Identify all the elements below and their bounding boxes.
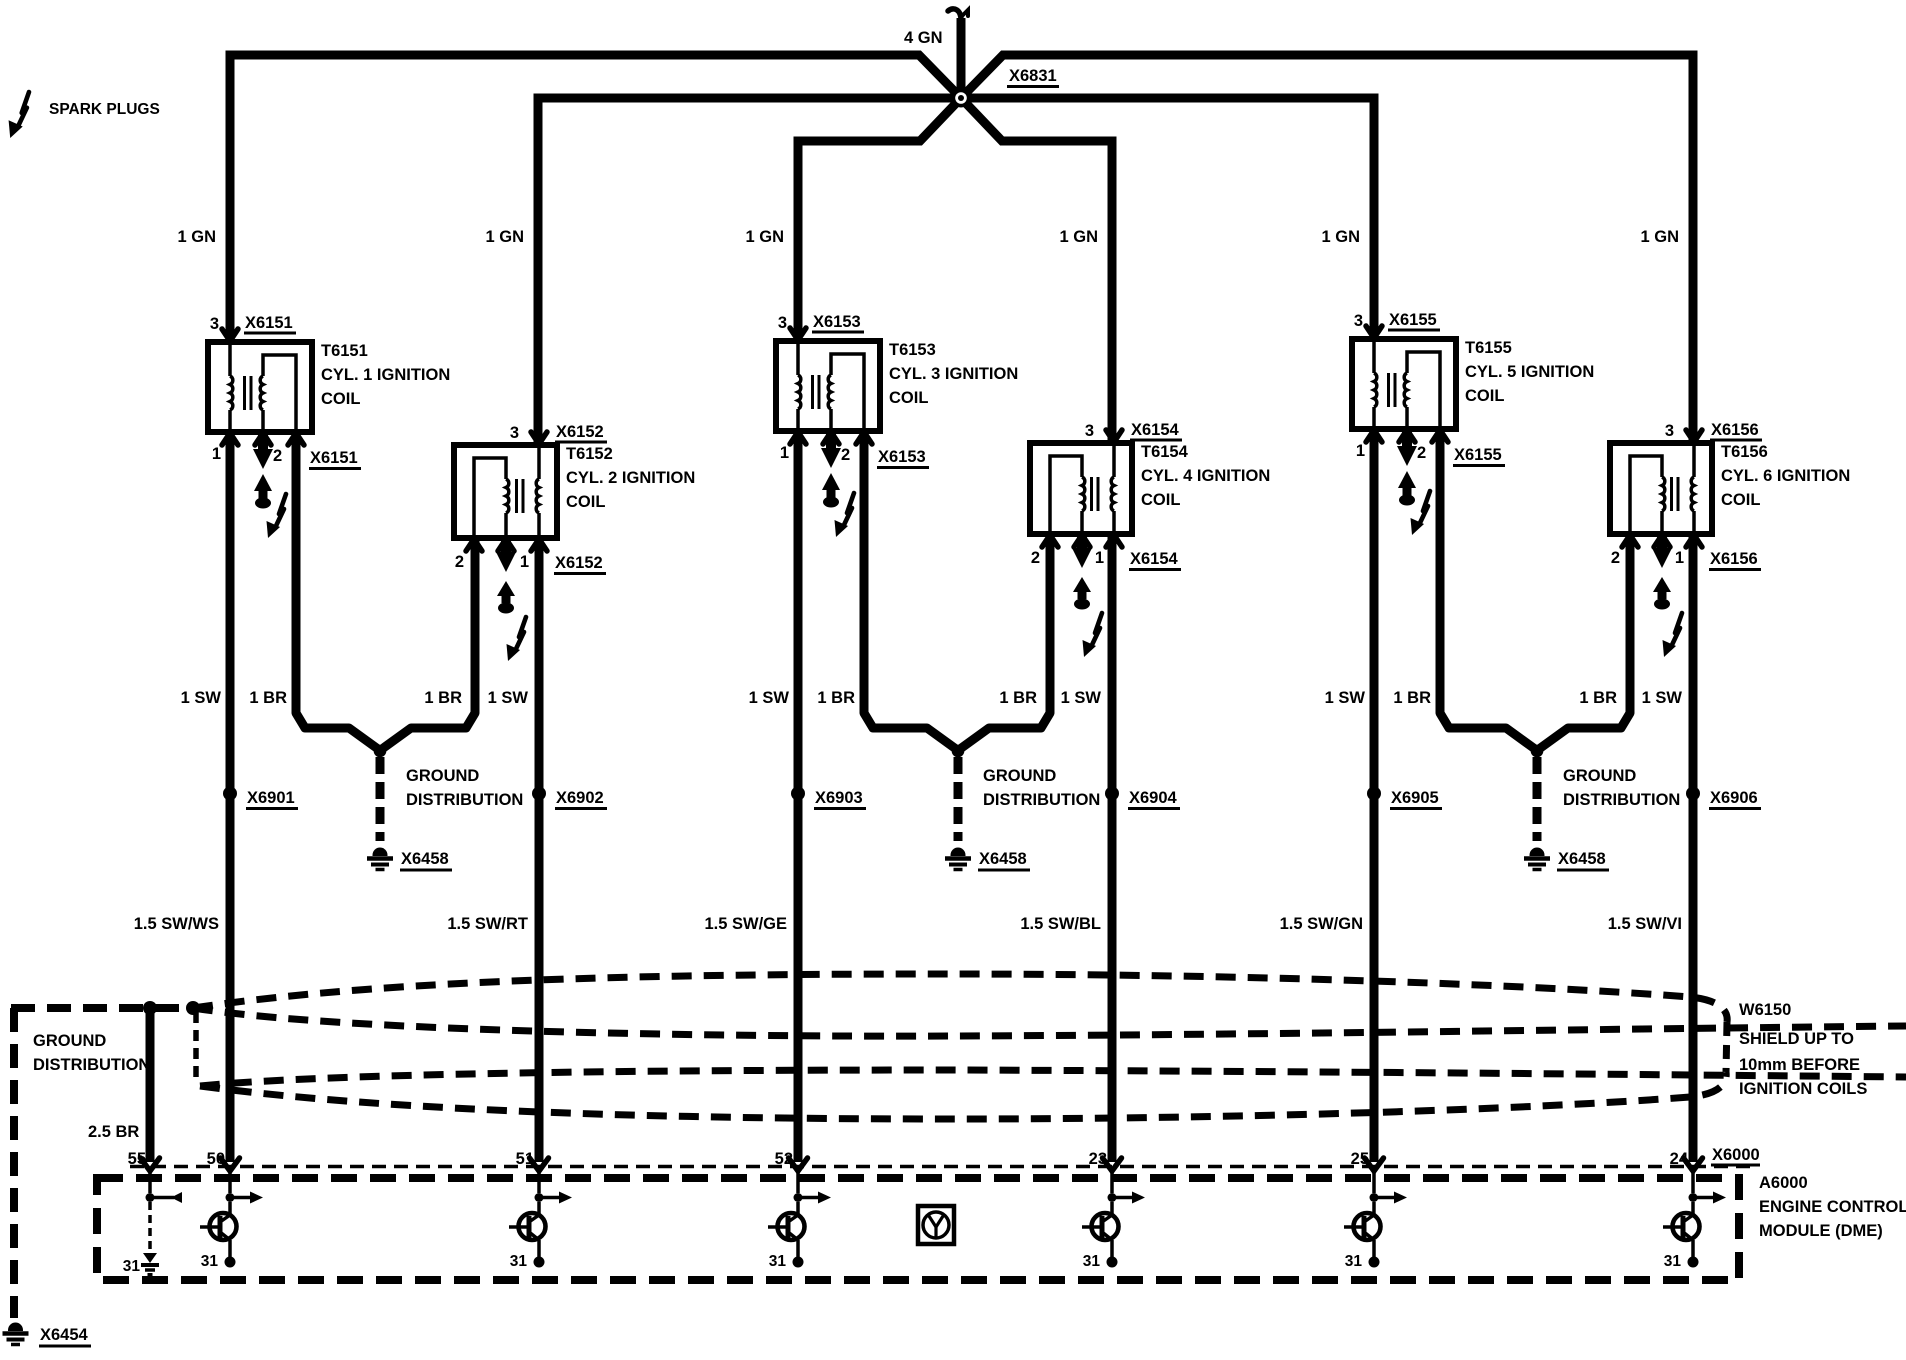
svg-text:IGNITION COILS: IGNITION COILS [1739,1080,1867,1098]
svg-text:X6458: X6458 [979,850,1027,868]
svg-text:X6156: X6156 [1710,550,1758,568]
svg-text:X6155: X6155 [1454,446,1502,464]
svg-text:COIL: COIL [1141,491,1180,509]
svg-text:COIL: COIL [321,390,360,408]
svg-text:1 BR: 1 BR [1579,689,1617,707]
svg-text:T6152: T6152 [566,445,613,463]
svg-text:DISTRIBUTION: DISTRIBUTION [33,1056,150,1074]
svg-text:W6150: W6150 [1739,1001,1791,1019]
svg-text:T6154: T6154 [1141,443,1189,461]
svg-text:1: 1 [212,445,221,463]
svg-text:X6458: X6458 [401,850,449,868]
svg-text:1 BR: 1 BR [999,689,1037,707]
svg-text:1 BR: 1 BR [249,689,287,707]
svg-text:1.5 SW/BL: 1.5 SW/BL [1020,915,1101,933]
svg-text:X6154: X6154 [1130,550,1179,568]
svg-text:X6151: X6151 [310,449,358,467]
svg-text:1 SW: 1 SW [1642,689,1683,707]
svg-text:ENGINE CONTROL: ENGINE CONTROL [1759,1198,1906,1216]
svg-text:10mm BEFORE: 10mm BEFORE [1739,1056,1860,1074]
svg-text:GROUND: GROUND [1563,767,1636,785]
svg-text:1: 1 [780,444,789,462]
svg-text:COIL: COIL [1721,491,1760,509]
svg-text:1 SW: 1 SW [181,689,222,707]
svg-text:3: 3 [1665,422,1674,440]
svg-text:1 SW: 1 SW [488,689,529,707]
svg-text:2: 2 [1611,549,1620,567]
svg-text:X6831: X6831 [1009,67,1057,85]
svg-text:CYL. 5 IGNITION: CYL. 5 IGNITION [1465,363,1594,381]
svg-text:1.5 SW/GN: 1.5 SW/GN [1280,915,1363,933]
svg-text:X6152: X6152 [555,554,603,572]
svg-text:DISTRIBUTION: DISTRIBUTION [406,791,523,809]
svg-text:COIL: COIL [889,389,928,407]
svg-text:1: 1 [1356,442,1365,460]
svg-text:CYL. 2 IGNITION: CYL. 2 IGNITION [566,469,695,487]
svg-text:X6906: X6906 [1710,789,1758,807]
svg-text:X6458: X6458 [1558,850,1606,868]
svg-text:1 BR: 1 BR [817,689,855,707]
svg-text:31: 31 [1345,1253,1363,1270]
svg-text:X6905: X6905 [1391,789,1439,807]
svg-text:31: 31 [769,1253,787,1270]
svg-text:DISTRIBUTION: DISTRIBUTION [1563,791,1680,809]
svg-text:1 GN: 1 GN [1640,228,1679,246]
svg-text:1: 1 [520,553,529,571]
svg-text:X6904: X6904 [1129,789,1178,807]
svg-text:31: 31 [1083,1253,1101,1270]
svg-text:X6454: X6454 [40,1326,89,1344]
svg-text:SHIELD UP TO: SHIELD UP TO [1739,1030,1854,1048]
svg-text:X6152: X6152 [556,423,604,441]
svg-text:24: 24 [1670,1150,1689,1168]
svg-text:COIL: COIL [1465,387,1504,405]
svg-text:1 SW: 1 SW [1325,689,1366,707]
svg-text:X6153: X6153 [878,448,926,466]
svg-text:31: 31 [201,1253,219,1270]
svg-text:2.5 BR: 2.5 BR [88,1123,139,1141]
svg-text:50: 50 [207,1150,225,1168]
svg-text:2: 2 [1417,444,1426,462]
svg-text:X6902: X6902 [556,789,604,807]
svg-text:T6151: T6151 [321,342,368,360]
svg-text:3: 3 [510,424,519,442]
svg-text:4 GN: 4 GN [904,29,943,47]
svg-text:1.5 SW/RT: 1.5 SW/RT [447,915,528,933]
svg-text:1 GN: 1 GN [745,228,784,246]
svg-text:GROUND: GROUND [406,767,479,785]
svg-text:T6153: T6153 [889,341,936,359]
svg-text:25: 25 [1351,1150,1369,1168]
svg-text:CYL. 6 IGNITION: CYL. 6 IGNITION [1721,467,1850,485]
svg-text:1 BR: 1 BR [424,689,462,707]
svg-text:1 GN: 1 GN [1059,228,1098,246]
svg-text:SPARK PLUGS: SPARK PLUGS [49,101,160,118]
svg-text:3: 3 [778,314,787,332]
svg-text:2: 2 [455,553,464,571]
svg-text:1 BR: 1 BR [1393,689,1431,707]
svg-text:52: 52 [775,1150,793,1168]
svg-text:31: 31 [1664,1253,1682,1270]
svg-text:T6156: T6156 [1721,443,1768,461]
svg-text:2: 2 [1031,549,1040,567]
svg-text:COIL: COIL [566,493,605,511]
svg-text:X6155: X6155 [1389,311,1437,329]
svg-text:31: 31 [510,1253,528,1270]
svg-text:1 SW: 1 SW [749,689,790,707]
svg-text:31: 31 [123,1258,141,1275]
svg-text:CYL. 4 IGNITION: CYL. 4 IGNITION [1141,467,1270,485]
svg-text:MODULE (DME): MODULE (DME) [1759,1222,1883,1240]
svg-text:1: 1 [1095,549,1104,567]
svg-text:T6155: T6155 [1465,339,1512,357]
svg-text:X6156: X6156 [1711,421,1759,439]
svg-text:1.5 SW/GE: 1.5 SW/GE [704,915,787,933]
svg-text:2: 2 [841,446,850,464]
svg-text:X6901: X6901 [247,789,295,807]
svg-text:23: 23 [1089,1150,1107,1168]
svg-text:CYL. 3 IGNITION: CYL. 3 IGNITION [889,365,1018,383]
svg-text:3: 3 [1354,312,1363,330]
svg-text:1 GN: 1 GN [485,228,524,246]
svg-text:X6153: X6153 [813,313,861,331]
svg-text:X6151: X6151 [245,314,293,332]
svg-text:1 GN: 1 GN [1321,228,1360,246]
svg-text:GROUND: GROUND [33,1032,106,1050]
svg-text:X6154: X6154 [1131,421,1180,439]
svg-text:1.5 SW/WS: 1.5 SW/WS [134,915,219,933]
svg-text:A6000: A6000 [1759,1174,1808,1192]
svg-text:51: 51 [516,1150,534,1168]
svg-text:55: 55 [128,1150,146,1168]
svg-text:CYL. 1 IGNITION: CYL. 1 IGNITION [321,366,450,384]
svg-text:2: 2 [273,447,282,465]
svg-text:GROUND: GROUND [983,767,1056,785]
svg-text:1 GN: 1 GN [177,228,216,246]
svg-text:1: 1 [1675,549,1684,567]
svg-text:3: 3 [210,315,219,333]
svg-text:1 SW: 1 SW [1061,689,1102,707]
svg-text:1.5 SW/VI: 1.5 SW/VI [1608,915,1682,933]
svg-text:X6903: X6903 [815,789,863,807]
svg-text:DISTRIBUTION: DISTRIBUTION [983,791,1100,809]
svg-text:X6000: X6000 [1712,1146,1760,1164]
svg-text:3: 3 [1085,422,1094,440]
